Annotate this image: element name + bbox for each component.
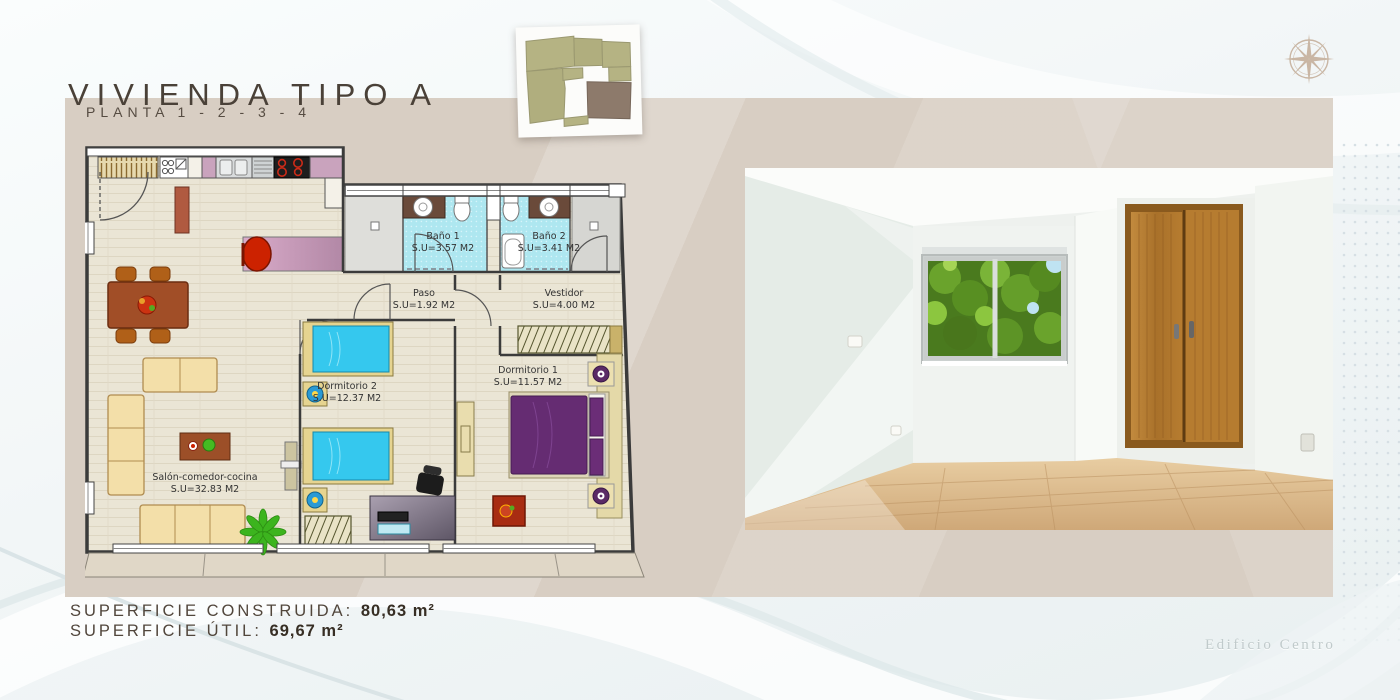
surface-summary: SUPERFICIE CONSTRUIDA: 80,63 m² SUPERFIC… [70,601,435,641]
room-photo [745,168,1333,530]
highlighted-unit [587,81,632,120]
room-label-dormitorio1: Dormitorio 1 S.U=11.57 M2 [494,365,562,388]
floor-levels-subtitle: PLANTA 1 - 2 - 3 - 4 [86,104,311,120]
svg-text:S.U=1.92 M2: S.U=1.92 M2 [393,300,455,311]
useful-surface-value: 69,67 m² [270,622,344,640]
svg-text:Baño 1: Baño 1 [426,231,459,242]
wardrobe [1125,204,1243,448]
useful-surface-line: SUPERFICIE ÚTIL: 69,67 m² [70,621,435,641]
brochure-page: VIVIENDA TIPO A PLANTA 1 - 2 - 3 - 4 [0,0,1400,700]
vestidor-wardrobe [518,326,622,353]
built-surface-line: SUPERFICIE CONSTRUIDA: 80,63 m² [70,601,435,621]
svg-text:Vestidor: Vestidor [545,288,584,299]
compass-rose-icon [1280,30,1338,88]
svg-text:S.U=4.00 M2: S.U=4.00 M2 [533,300,595,311]
svg-text:Dormitorio 2: Dormitorio 2 [317,381,377,392]
top-wall-windows [345,184,625,197]
room-label-dormitorio2: Dormitorio 2 S.U=12.37 M2 [313,381,381,404]
svg-text:Salón-comedor-cocina: Salón-comedor-cocina [152,472,257,483]
site-key-plan-drawing [516,24,643,137]
bathroom-zone [345,189,620,272]
svg-text:S.U=3.41 M2: S.U=3.41 M2 [518,243,580,254]
svg-text:S.U=11.57 M2: S.U=11.57 M2 [494,377,562,388]
floor-plan: Baño 1 S.U=3.57 M2 Baño 2 S.U=3.41 M2 Pa… [85,140,645,580]
balcony [85,553,644,577]
bottom-glazing [113,544,595,553]
svg-text:Baño 2: Baño 2 [532,231,565,242]
svg-text:S.U=3.57 M2: S.U=3.57 M2 [412,243,474,254]
svg-text:Paso: Paso [413,288,435,299]
svg-text:S.U=12.37 M2: S.U=12.37 M2 [313,393,381,404]
building-watermark: Edificio Centro [1205,637,1335,654]
site-key-plan [516,24,643,137]
built-surface-value: 80,63 m² [361,602,435,620]
svg-text:S.U=32.83 M2: S.U=32.83 M2 [171,484,239,495]
built-surface-label: SUPERFICIE CONSTRUIDA: [70,602,353,620]
useful-surface-label: SUPERFICIE ÚTIL: [70,622,262,640]
svg-text:Dormitorio 1: Dormitorio 1 [498,365,558,376]
